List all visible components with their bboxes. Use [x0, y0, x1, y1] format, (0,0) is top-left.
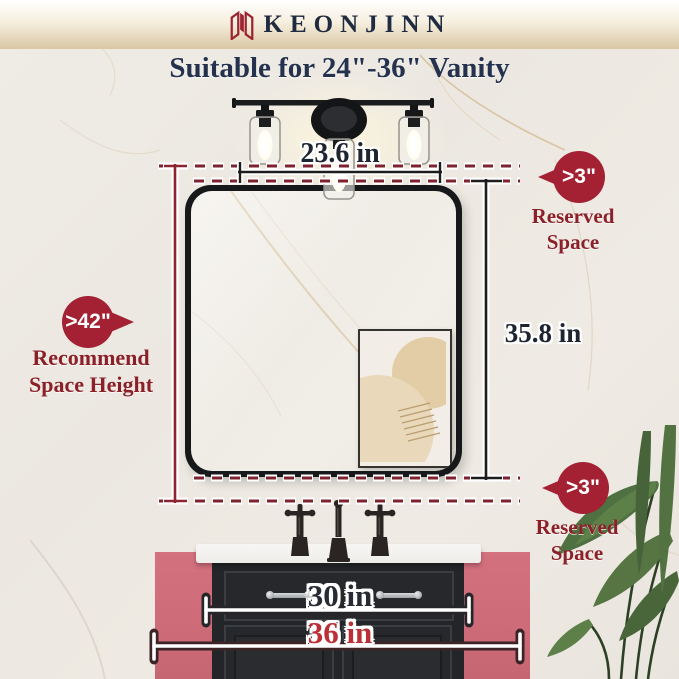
reserved-space-bottom-label: Reserved Space: [517, 514, 637, 566]
reserved-space-top-label: Reserved Space: [513, 203, 633, 255]
reserved-space-bottom-value: >3": [557, 476, 609, 500]
reflected-wall-art: [358, 329, 452, 468]
brand-name: KEONJINN: [264, 11, 452, 39]
brand-header: KEONJINN: [0, 0, 679, 49]
mirror-glass: [191, 191, 456, 471]
brand-logo-icon: [228, 10, 256, 40]
vanity-width-max-label: 36 in: [265, 615, 415, 651]
page-title: Suitable for 24"-36" Vanity: [0, 52, 679, 85]
product-dimension-diagram: KEONJINN Suitable for 24"-36" Vanity: [0, 0, 679, 679]
vanity-width-min-label: 30 in: [265, 578, 415, 614]
recommend-height-badge: >42": [55, 296, 137, 348]
faucet: [280, 496, 400, 564]
reserved-space-bottom-badge: >3": [540, 462, 616, 514]
brand-logo: KEONJINN: [228, 10, 452, 40]
reserved-space-top-value: >3": [553, 165, 605, 189]
reserved-space-top-badge: >3": [536, 151, 612, 203]
recommend-height-label: Recommend Space Height: [5, 344, 177, 398]
mirror-image: [185, 185, 462, 477]
recommend-height-value: >42": [62, 310, 114, 334]
fixture-width-label: 23.6 in: [265, 138, 415, 170]
mirror-height-label: 35.8 in: [488, 318, 598, 349]
